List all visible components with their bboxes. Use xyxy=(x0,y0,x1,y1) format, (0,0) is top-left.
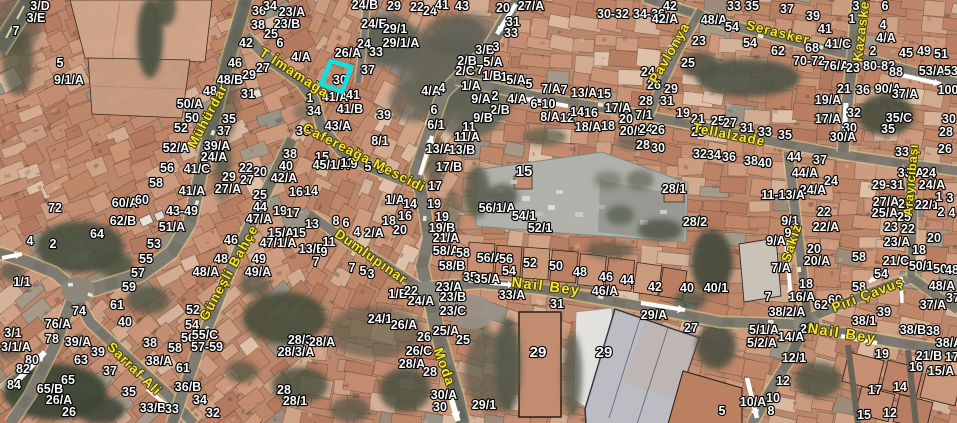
svg-text:50: 50 xyxy=(549,259,563,273)
svg-text:16: 16 xyxy=(289,185,303,199)
svg-text:37: 37 xyxy=(103,364,117,378)
svg-text:20: 20 xyxy=(927,231,941,245)
svg-text:39: 39 xyxy=(877,305,891,319)
svg-text:24/A: 24/A xyxy=(408,294,434,308)
svg-text:49: 49 xyxy=(917,44,931,58)
svg-text:4: 4 xyxy=(27,234,34,248)
svg-text:65: 65 xyxy=(61,373,75,387)
svg-text:58: 58 xyxy=(149,176,163,190)
svg-text:36/B: 36/B xyxy=(175,380,201,394)
svg-text:15: 15 xyxy=(516,163,533,180)
svg-text:37: 37 xyxy=(217,124,231,138)
svg-text:82: 82 xyxy=(16,362,30,376)
svg-text:49/A: 49/A xyxy=(245,265,271,279)
svg-text:29/1: 29/1 xyxy=(383,22,407,36)
svg-text:14: 14 xyxy=(304,184,318,198)
svg-text:16: 16 xyxy=(398,209,412,223)
svg-text:6: 6 xyxy=(277,36,284,50)
svg-text:28/1: 28/1 xyxy=(283,394,307,408)
svg-text:41/C: 41/C xyxy=(825,37,851,51)
svg-text:31: 31 xyxy=(241,87,255,101)
svg-text:4/A: 4/A xyxy=(507,92,526,106)
svg-text:27/A: 27/A xyxy=(215,182,241,196)
svg-text:40: 40 xyxy=(680,281,694,295)
svg-text:39: 39 xyxy=(377,108,391,122)
svg-text:61: 61 xyxy=(176,361,190,375)
svg-text:38: 38 xyxy=(744,154,758,168)
svg-text:32: 32 xyxy=(206,406,220,420)
svg-text:4: 4 xyxy=(439,81,446,95)
svg-text:33: 33 xyxy=(504,26,518,40)
svg-text:27: 27 xyxy=(684,321,698,335)
svg-text:28/2: 28/2 xyxy=(683,215,707,229)
svg-text:44/A: 44/A xyxy=(792,166,818,180)
svg-text:11/A: 11/A xyxy=(454,130,480,144)
svg-text:54: 54 xyxy=(743,36,757,50)
svg-text:22: 22 xyxy=(410,0,424,14)
svg-text:48/A: 48/A xyxy=(701,13,727,27)
svg-text:28: 28 xyxy=(636,138,650,152)
svg-text:37: 37 xyxy=(946,291,957,305)
svg-text:26: 26 xyxy=(62,405,76,419)
svg-text:15: 15 xyxy=(857,408,871,422)
svg-text:29/1/A: 29/1/A xyxy=(383,36,420,50)
svg-text:29: 29 xyxy=(387,0,401,13)
svg-text:35: 35 xyxy=(745,0,759,13)
svg-text:17: 17 xyxy=(286,206,300,220)
svg-text:34: 34 xyxy=(263,0,277,13)
svg-text:37: 37 xyxy=(780,2,794,16)
svg-text:10: 10 xyxy=(766,391,780,405)
svg-text:19: 19 xyxy=(427,197,441,211)
svg-text:5: 5 xyxy=(526,77,533,91)
svg-text:7/A: 7/A xyxy=(541,82,560,96)
svg-text:23: 23 xyxy=(692,34,706,48)
svg-text:24/B: 24/B xyxy=(352,0,378,12)
svg-text:17/B: 17/B xyxy=(436,160,462,174)
svg-text:29: 29 xyxy=(530,344,547,361)
svg-text:31: 31 xyxy=(660,94,674,108)
svg-text:22: 22 xyxy=(901,222,915,236)
svg-text:3: 3 xyxy=(947,191,954,205)
svg-text:5: 5 xyxy=(57,56,64,70)
svg-text:53/A: 53/A xyxy=(919,64,945,78)
svg-text:9: 9 xyxy=(321,245,328,259)
svg-text:74: 74 xyxy=(72,304,86,318)
svg-text:23/A: 23/A xyxy=(884,235,910,249)
svg-text:23/B: 23/B xyxy=(440,290,466,304)
svg-text:18: 18 xyxy=(601,119,615,133)
svg-text:3: 3 xyxy=(368,267,375,281)
svg-text:37: 37 xyxy=(361,63,375,77)
svg-text:22: 22 xyxy=(817,205,831,219)
svg-text:56: 56 xyxy=(160,161,174,175)
svg-text:2/C: 2/C xyxy=(455,64,474,78)
svg-text:23/B: 23/B xyxy=(274,17,300,31)
svg-text:29/A: 29/A xyxy=(641,308,667,322)
svg-text:14: 14 xyxy=(570,105,584,119)
svg-text:57-59: 57-59 xyxy=(191,340,223,354)
svg-text:61: 61 xyxy=(110,298,124,312)
svg-text:20: 20 xyxy=(393,223,407,237)
svg-text:41/A: 41/A xyxy=(179,184,205,198)
svg-text:2/B: 2/B xyxy=(490,103,509,117)
svg-text:34: 34 xyxy=(307,104,321,118)
svg-text:7: 7 xyxy=(313,255,320,269)
svg-text:30-32: 30-32 xyxy=(597,7,629,21)
svg-text:40: 40 xyxy=(758,156,772,170)
svg-text:9/B: 9/B xyxy=(473,111,492,125)
svg-text:78: 78 xyxy=(45,332,59,346)
svg-text:15: 15 xyxy=(597,87,611,101)
svg-text:26/C: 26/C xyxy=(406,344,432,358)
svg-text:36: 36 xyxy=(722,150,736,164)
svg-text:37: 37 xyxy=(813,153,827,167)
svg-text:35: 35 xyxy=(122,385,136,399)
svg-text:3: 3 xyxy=(493,40,500,54)
svg-text:30: 30 xyxy=(651,141,665,155)
svg-text:44: 44 xyxy=(787,150,801,164)
svg-text:21/A: 21/A xyxy=(433,231,459,245)
svg-text:5/1/A: 5/1/A xyxy=(749,323,779,337)
svg-text:59: 59 xyxy=(122,280,136,294)
svg-text:62: 62 xyxy=(771,44,785,58)
svg-text:47/1/A: 47/1/A xyxy=(260,236,297,250)
svg-text:26: 26 xyxy=(651,123,665,137)
svg-text:58: 58 xyxy=(168,341,182,355)
svg-text:39/A: 39/A xyxy=(65,335,91,349)
svg-text:26: 26 xyxy=(417,330,431,344)
svg-text:19: 19 xyxy=(875,347,889,361)
svg-text:22/A: 22/A xyxy=(813,220,839,234)
svg-text:35: 35 xyxy=(881,122,895,136)
svg-text:13/A: 13/A xyxy=(571,86,597,100)
svg-text:38/A: 38/A xyxy=(936,336,957,350)
svg-text:5/A: 5/A xyxy=(506,73,525,87)
svg-text:100: 100 xyxy=(938,83,957,97)
svg-text:25: 25 xyxy=(456,333,470,347)
svg-text:1/B: 1/B xyxy=(482,69,501,83)
svg-text:48: 48 xyxy=(573,265,587,279)
svg-text:2/A: 2/A xyxy=(364,226,383,240)
svg-text:17: 17 xyxy=(428,179,442,193)
svg-text:56/1/A: 56/1/A xyxy=(479,201,516,215)
svg-text:41: 41 xyxy=(435,0,449,12)
svg-text:28: 28 xyxy=(423,365,437,379)
svg-text:6: 6 xyxy=(882,0,889,13)
svg-text:27/A: 27/A xyxy=(518,0,544,13)
svg-text:2: 2 xyxy=(938,205,945,219)
svg-text:38/2/A: 38/2/A xyxy=(769,305,806,319)
svg-text:51: 51 xyxy=(934,47,948,61)
svg-text:18: 18 xyxy=(799,277,813,291)
svg-text:52: 52 xyxy=(174,121,188,135)
svg-text:2: 2 xyxy=(870,44,877,58)
svg-text:30: 30 xyxy=(433,400,447,414)
svg-text:13: 13 xyxy=(305,217,319,231)
svg-text:5/2/A: 5/2/A xyxy=(747,336,777,350)
svg-text:38: 38 xyxy=(251,18,265,32)
svg-text:41: 41 xyxy=(346,88,360,102)
svg-text:46: 46 xyxy=(599,270,613,284)
svg-text:34: 34 xyxy=(193,393,207,407)
svg-text:33: 33 xyxy=(369,45,383,59)
svg-text:17: 17 xyxy=(945,350,957,364)
svg-text:16/A: 16/A xyxy=(789,290,815,304)
svg-text:36: 36 xyxy=(856,83,870,97)
svg-text:31: 31 xyxy=(550,297,564,311)
svg-text:24/1: 24/1 xyxy=(368,312,392,326)
svg-text:12/1: 12/1 xyxy=(782,351,806,365)
svg-text:63: 63 xyxy=(74,353,88,367)
svg-text:2: 2 xyxy=(492,89,499,103)
svg-text:33: 33 xyxy=(727,0,741,13)
svg-text:17: 17 xyxy=(868,383,882,397)
svg-text:33: 33 xyxy=(165,402,179,416)
svg-text:76/A: 76/A xyxy=(45,317,71,331)
svg-text:28/1: 28/1 xyxy=(662,182,686,196)
svg-text:4: 4 xyxy=(880,18,887,32)
svg-text:54: 54 xyxy=(725,20,739,34)
svg-text:20: 20 xyxy=(253,165,267,179)
svg-text:51/A: 51/A xyxy=(159,220,185,234)
svg-text:30/A: 30/A xyxy=(830,130,856,144)
svg-text:64: 64 xyxy=(90,227,104,241)
svg-text:21/C: 21/C xyxy=(883,254,909,268)
svg-text:3/1: 3/1 xyxy=(4,326,21,340)
svg-text:40: 40 xyxy=(118,315,132,329)
svg-text:12: 12 xyxy=(776,374,790,388)
svg-text:1/1: 1/1 xyxy=(13,275,30,289)
svg-text:28/A: 28/A xyxy=(399,357,425,371)
svg-text:18: 18 xyxy=(912,243,926,257)
svg-text:42/A: 42/A xyxy=(652,12,678,26)
svg-text:9/1/A: 9/1/A xyxy=(54,73,84,87)
svg-text:15/A: 15/A xyxy=(928,364,954,378)
svg-text:14: 14 xyxy=(893,380,907,394)
svg-text:8: 8 xyxy=(768,404,775,418)
svg-text:11-13/A: 11-13/A xyxy=(761,188,805,202)
svg-text:88: 88 xyxy=(889,65,903,79)
svg-text:19: 19 xyxy=(676,106,690,120)
svg-text:35: 35 xyxy=(778,128,792,142)
svg-text:20/A: 20/A xyxy=(804,254,830,268)
svg-text:16: 16 xyxy=(584,106,598,120)
svg-text:38/A: 38/A xyxy=(146,354,172,368)
svg-text:23: 23 xyxy=(846,61,860,75)
svg-text:8: 8 xyxy=(333,214,340,228)
svg-text:4/A: 4/A xyxy=(876,31,895,45)
svg-text:14/A: 14/A xyxy=(778,330,804,344)
svg-text:42: 42 xyxy=(648,280,662,294)
svg-text:23: 23 xyxy=(884,220,898,234)
svg-text:1/A: 1/A xyxy=(461,79,480,93)
svg-text:20: 20 xyxy=(496,1,510,15)
svg-text:32: 32 xyxy=(693,147,707,161)
svg-text:41/B: 41/B xyxy=(337,102,363,116)
svg-text:29: 29 xyxy=(242,68,256,82)
svg-text:84: 84 xyxy=(7,378,21,392)
svg-text:6: 6 xyxy=(431,103,438,117)
svg-text:33/B: 33/B xyxy=(140,401,166,415)
svg-text:46/A: 46/A xyxy=(592,284,618,298)
svg-text:29-31: 29-31 xyxy=(872,178,904,192)
svg-text:58/B: 58/B xyxy=(439,259,465,273)
svg-text:43-49: 43-49 xyxy=(166,204,198,218)
svg-text:40/1: 40/1 xyxy=(704,281,728,295)
svg-text:10/A: 10/A xyxy=(740,395,766,409)
svg-text:32: 32 xyxy=(847,106,861,120)
svg-text:16: 16 xyxy=(909,360,923,374)
svg-text:8/1: 8/1 xyxy=(371,134,388,148)
svg-text:37/A: 37/A xyxy=(892,87,918,101)
svg-text:26/A: 26/A xyxy=(335,46,361,60)
svg-text:1/A: 1/A xyxy=(385,193,404,207)
svg-text:60: 60 xyxy=(135,193,149,207)
svg-text:43: 43 xyxy=(455,0,469,13)
svg-text:70-72: 70-72 xyxy=(793,54,825,68)
svg-text:38/1: 38/1 xyxy=(852,314,876,328)
svg-text:9/A: 9/A xyxy=(471,92,490,106)
svg-text:4: 4 xyxy=(949,206,956,220)
svg-text:62: 62 xyxy=(814,298,828,312)
svg-text:53: 53 xyxy=(147,237,161,251)
svg-text:50/A: 50/A xyxy=(177,97,203,111)
svg-text:23/C: 23/C xyxy=(440,304,466,318)
svg-text:28/3/A: 28/3/A xyxy=(278,345,315,359)
svg-text:38/B: 38/B xyxy=(900,323,926,337)
svg-text:26/A: 26/A xyxy=(391,318,417,332)
svg-text:53: 53 xyxy=(944,64,957,78)
svg-text:26: 26 xyxy=(938,142,952,156)
svg-text:25/A: 25/A xyxy=(872,206,898,220)
svg-text:38: 38 xyxy=(143,336,157,350)
svg-text:3/1/A: 3/1/A xyxy=(1,340,31,354)
svg-text:48/A: 48/A xyxy=(193,265,219,279)
svg-text:17/A: 17/A xyxy=(815,112,841,126)
svg-text:2: 2 xyxy=(50,237,57,251)
svg-text:39: 39 xyxy=(91,345,105,359)
svg-text:5: 5 xyxy=(719,404,726,418)
svg-text:34: 34 xyxy=(707,148,721,162)
svg-text:1: 1 xyxy=(936,190,943,204)
svg-text:58: 58 xyxy=(852,250,866,264)
svg-text:5: 5 xyxy=(360,264,367,278)
svg-text:55: 55 xyxy=(139,252,153,266)
svg-text:44: 44 xyxy=(620,273,634,287)
svg-text:8/A: 8/A xyxy=(540,110,559,124)
svg-text:19/A: 19/A xyxy=(815,93,841,107)
svg-text:57: 57 xyxy=(131,266,145,280)
svg-text:37/A: 37/A xyxy=(920,298,946,312)
svg-text:42/A: 42/A xyxy=(271,171,297,185)
svg-text:50/1: 50/1 xyxy=(909,259,933,273)
svg-text:42: 42 xyxy=(239,36,253,50)
svg-text:58: 58 xyxy=(456,246,470,260)
svg-text:72: 72 xyxy=(48,201,62,215)
svg-text:13/B: 13/B xyxy=(449,143,475,157)
svg-text:4/A: 4/A xyxy=(291,50,310,64)
svg-text:6-10: 6-10 xyxy=(530,97,555,111)
svg-text:28: 28 xyxy=(639,94,653,108)
svg-text:7/1: 7/1 xyxy=(635,108,652,122)
svg-text:28: 28 xyxy=(939,125,953,139)
svg-text:25: 25 xyxy=(681,56,695,70)
svg-text:6/1: 6/1 xyxy=(427,118,444,132)
svg-text:7: 7 xyxy=(765,290,772,304)
svg-text:3/E: 3/E xyxy=(27,11,46,25)
svg-text:46: 46 xyxy=(228,56,242,70)
svg-text:52/1: 52/1 xyxy=(528,221,552,235)
svg-text:30: 30 xyxy=(942,112,956,126)
svg-text:7: 7 xyxy=(349,261,356,275)
svg-text:49: 49 xyxy=(252,252,266,266)
svg-text:39: 39 xyxy=(806,9,820,23)
svg-text:41/C: 41/C xyxy=(184,162,210,176)
svg-text:45: 45 xyxy=(899,46,913,60)
svg-text:35/A: 35/A xyxy=(474,272,500,286)
svg-text:48: 48 xyxy=(945,263,957,277)
svg-text:62/B: 62/B xyxy=(110,214,136,228)
svg-text:29/1: 29/1 xyxy=(472,398,496,412)
svg-text:52: 52 xyxy=(523,256,537,270)
svg-text:27: 27 xyxy=(240,173,254,187)
svg-text:19: 19 xyxy=(273,204,287,218)
svg-text:7: 7 xyxy=(13,24,20,38)
svg-text:12: 12 xyxy=(883,406,897,420)
svg-text:18/A: 18/A xyxy=(575,120,601,134)
svg-text:5/A: 5/A xyxy=(483,55,502,69)
svg-text:7: 7 xyxy=(561,83,568,97)
svg-text:41: 41 xyxy=(818,22,832,36)
svg-text:29: 29 xyxy=(596,344,613,361)
